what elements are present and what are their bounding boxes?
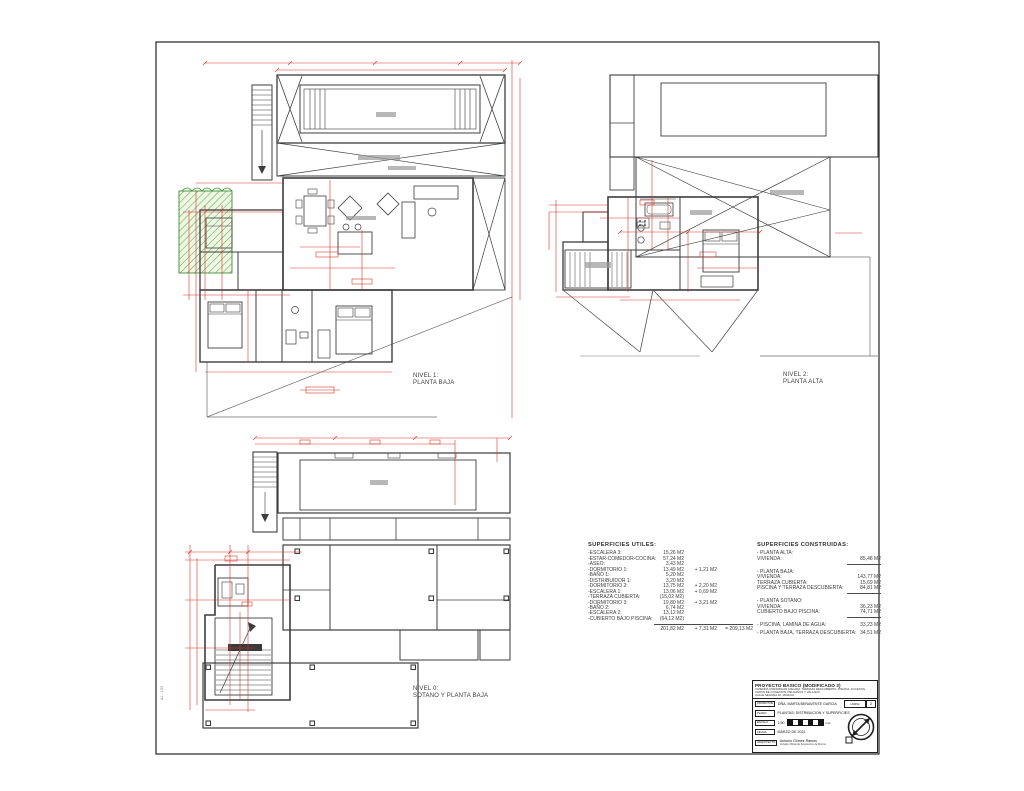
parcel-boundary <box>207 297 512 417</box>
table-total-row: 201,82 M2 + 7,31 M2 = 209,13 M2 <box>588 624 758 632</box>
lamina-label: LAMINA <box>844 700 866 708</box>
dimensions-nivel0 <box>185 436 512 712</box>
plan-label-nivel1: NIVEL 1: PLANTA BAJA <box>413 373 454 387</box>
living-block <box>283 178 505 290</box>
landscape-hatch <box>179 188 232 273</box>
south-rooms <box>200 290 392 362</box>
title-block-row-fecha: FECHA MARZO DE 2021 <box>753 728 845 737</box>
plan-label-nivel2: NIVEL 2: PLANTA ALTA <box>783 372 823 386</box>
plan-label-line: NIVEL 0: <box>413 686 488 693</box>
plan-label-line: SOTANO Y PLANTA BAJA <box>413 693 488 700</box>
upper-roof-pool <box>610 75 878 190</box>
title-block: PROYECTO BASICO (MODIFICADO 2) VIVIENDA … <box>752 680 878 753</box>
plan-label-line: PLANTA ALTA <box>783 379 823 386</box>
table-row: - PISCINA, LAMINA DE AGUA:33,23 M2 <box>757 623 881 628</box>
title-block-row-arquitecto: ARQUITECTO Antonio Gómez Ramos Colegio O… <box>753 737 845 749</box>
table-row: PISCINA Y TERRAZA DESCUBIERTA:84,81 M2 <box>757 586 881 591</box>
roof-terrace-x <box>636 157 830 257</box>
plot-stamp: A1 - 1:50 <box>160 686 164 700</box>
drawing-sheet: NIVEL 1: PLANTA BAJA NIVEL 2: PLANTA ALT… <box>0 0 1024 791</box>
divider <box>847 617 881 618</box>
plan-nivel1-drawing <box>179 60 522 418</box>
table-title: SUPERFICIES CONSTRUIDAS: <box>757 543 881 548</box>
table-row: VIVIENDA:85,48 M2 <box>757 557 881 562</box>
superficies-construidas-table: SUPERFICIES CONSTRUIDAS: - PLANTA ALTA: … <box>757 543 881 637</box>
plan-label-nivel0: NIVEL 0: SOTANO Y PLANTA BAJA <box>413 686 488 700</box>
table-row: -CUBIERTO BAJO PISCINA:(64,12 M2) <box>588 617 758 622</box>
parcel-boundary-2 <box>760 257 878 356</box>
table-row: - PLANTA BAJA, TERRAZA DESCUBIERTA:34,51… <box>757 631 881 636</box>
title-block-row-promotor: PROMOTOR DÑA. MARTA BENAVENTE GARCIA <box>753 699 845 708</box>
title-block-row-escala: ESCALA 1:50 mts <box>753 718 845 727</box>
pool-area <box>277 75 505 143</box>
plan-nivel2-drawing <box>549 75 878 356</box>
dimensions-nivel1 <box>183 60 522 418</box>
plan-label-line: NIVEL 2: <box>783 372 823 379</box>
title-block-right-column: LAMINA 2 <box>844 700 876 751</box>
sotano-room <box>205 565 290 700</box>
plan-label-line: NIVEL 1: <box>413 373 454 380</box>
upper-floor-block <box>563 197 758 290</box>
divider <box>847 564 881 565</box>
title-block-row-plano: PLANO PLANTAS: DISTRIBUCION Y SUPERFICIE… <box>753 709 845 718</box>
cad-linework <box>0 0 1024 791</box>
sheet-number: 2 <box>866 700 876 708</box>
table-row: CUBIERTO BAJO PISCINA:74,71 M2 <box>757 610 881 615</box>
project-location: CALLE SEGURA 10, MURCIA <box>755 694 875 697</box>
sheet-border <box>156 42 879 754</box>
plan-label-line: PLANTA BAJA <box>413 380 454 387</box>
compass-stamp-icon <box>844 708 876 746</box>
plan-nivel0-drawing <box>185 436 512 728</box>
terrace-band <box>277 143 505 176</box>
title-block-header: PROYECTO BASICO (MODIFICADO 2) VIVIENDA … <box>753 681 877 699</box>
superficies-utiles-table: SUPERFICIES UTILES: -ESCALERA 3:15,26 M2… <box>588 543 758 632</box>
divider <box>847 593 881 594</box>
architect-subtitle: Colegio Oficial de Arquitectos de Murcia <box>780 743 826 746</box>
stairs-nivel1 <box>252 85 272 180</box>
graphic-scale-bar <box>787 719 824 726</box>
table-title: SUPERFICIES UTILES: <box>588 543 758 548</box>
